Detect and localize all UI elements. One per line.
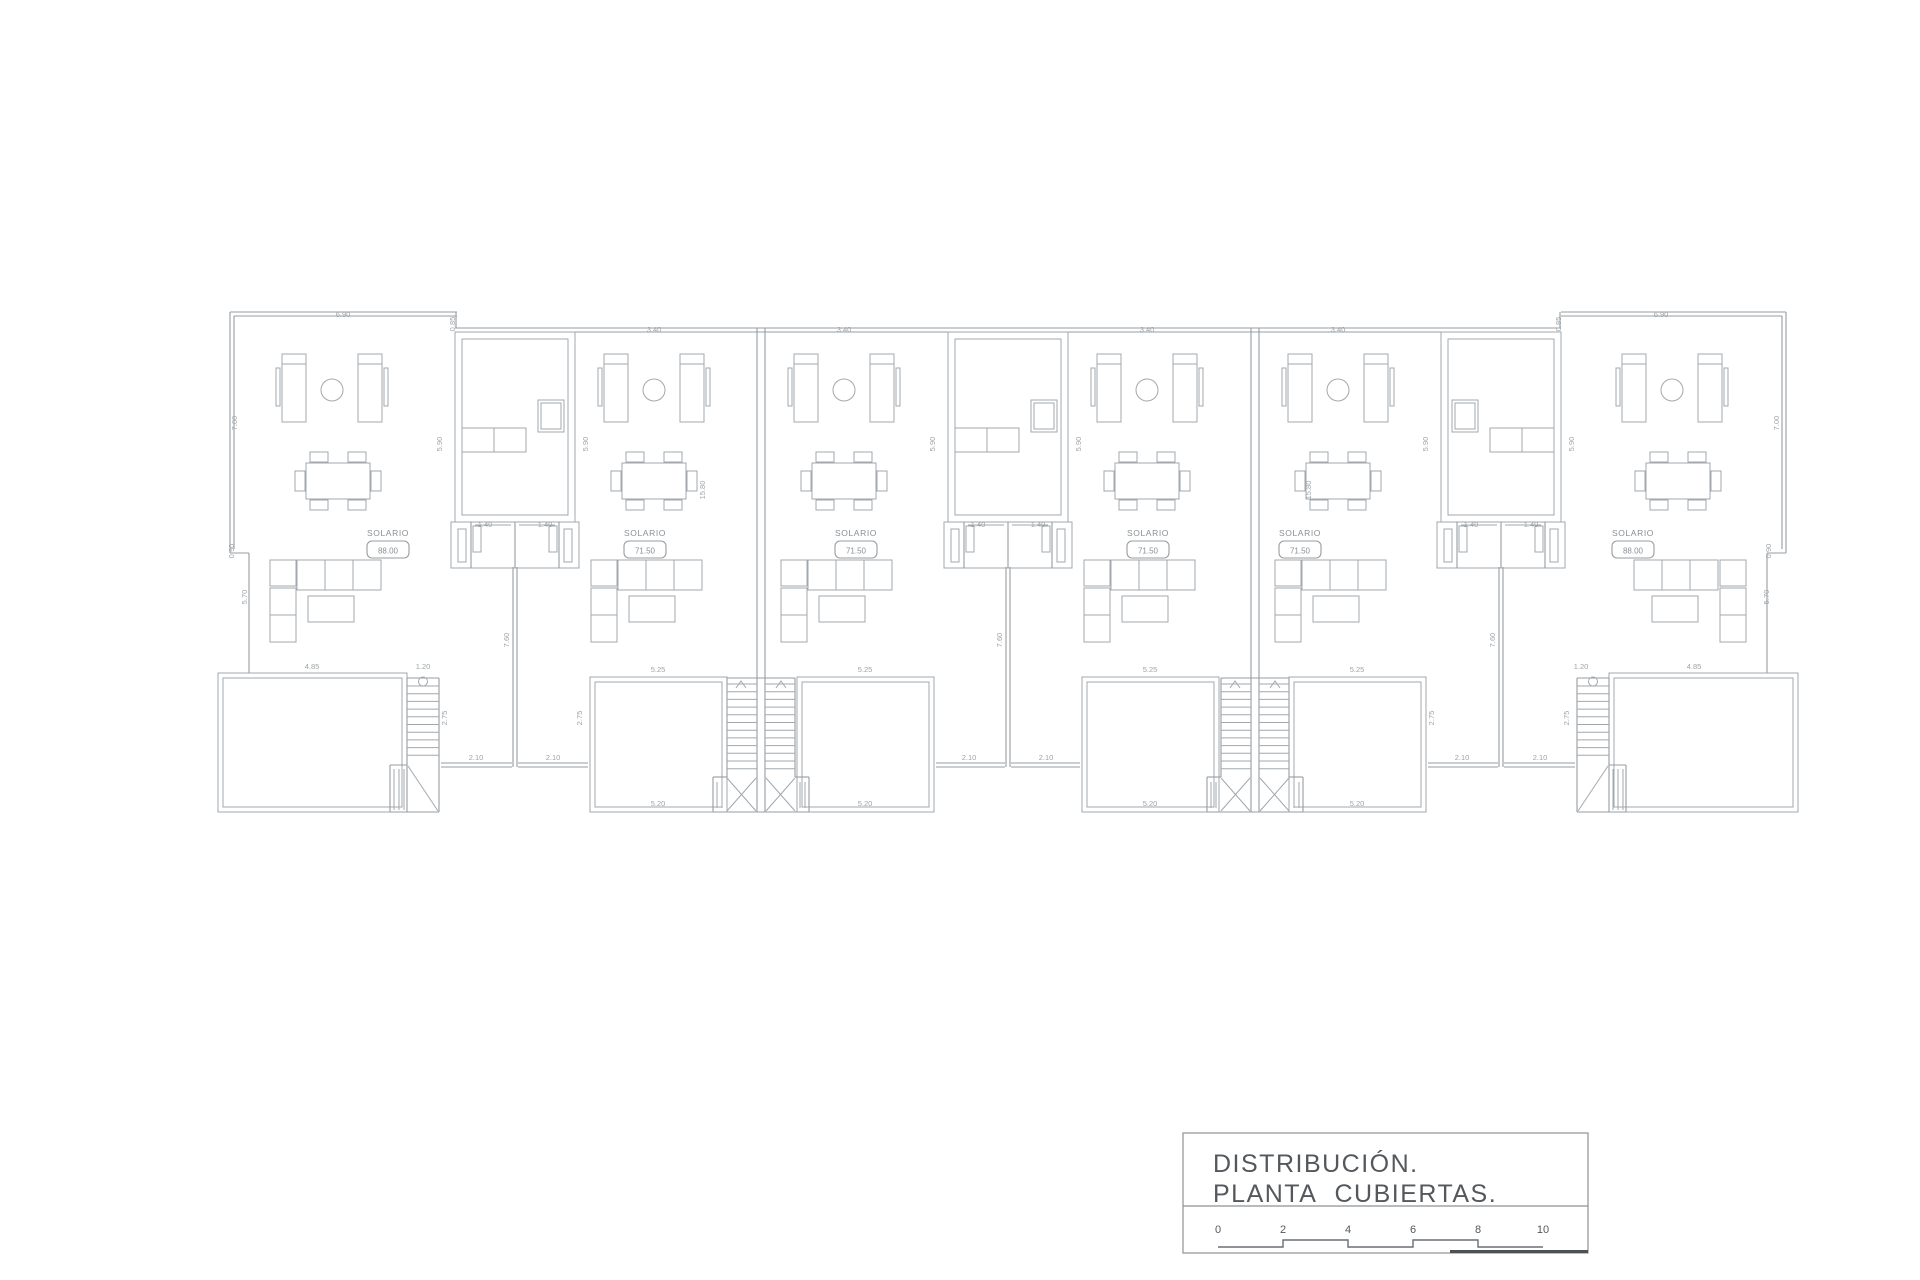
closet-door-leaf (549, 526, 557, 552)
dimension-label: 2.75 (575, 711, 584, 726)
solario-label: SOLARIO (367, 528, 409, 538)
dimension-label: 6.90 (1654, 310, 1669, 319)
sofa-corner (1084, 560, 1110, 586)
dining-chair (1688, 500, 1706, 510)
dining-chair (1650, 452, 1668, 462)
dimension-label: 5.90 (1074, 437, 1083, 452)
closet-slot (1444, 529, 1452, 562)
sofa-corner (781, 560, 807, 586)
roof-room (1082, 677, 1219, 812)
dimension-label: 5.20 (1143, 799, 1158, 808)
closet-slot (458, 529, 466, 562)
drawing-sheet: SOLARIO88.00SOLARIO71.50SOLARIO71.50SOLA… (0, 0, 1920, 1280)
dimension-label: 1.40 (1524, 520, 1539, 529)
dining-chair (877, 471, 887, 491)
dimension-label: 0.90 (1764, 544, 1773, 559)
dimension-label: 5.90 (1421, 437, 1430, 452)
dining-chair (1157, 452, 1175, 462)
closet-slot (1057, 529, 1065, 562)
sun-lounger-side (384, 368, 388, 406)
dimension-label: 7.00 (1772, 416, 1781, 431)
dining-table (1306, 463, 1370, 499)
dimension-label: 5.90 (928, 437, 937, 452)
scale-number: 0 (1215, 1224, 1221, 1236)
dimension-label: 6.90 (336, 310, 351, 319)
dining-chair (626, 452, 644, 462)
dining-chair (854, 452, 872, 462)
solario-area-value: 71.50 (1290, 547, 1311, 556)
roof-room-inner (1087, 682, 1214, 807)
sofa-three-seat (1111, 560, 1195, 590)
sofa-three-seat (808, 560, 892, 590)
dimension-label: 3.40 (1140, 325, 1155, 334)
solario-area-value: 88.00 (1623, 547, 1644, 556)
dimension-label: 5.25 (651, 665, 666, 674)
sun-lounger-side (1724, 368, 1728, 406)
solario-area-value: 71.50 (635, 547, 656, 556)
solario-label: SOLARIO (624, 528, 666, 538)
dining-chair (664, 500, 682, 510)
scale-number: 4 (1345, 1224, 1351, 1236)
dining-chair (295, 471, 305, 491)
dimension-label: 0.90 (227, 544, 236, 559)
dining-chair (664, 452, 682, 462)
sun-lounger-side (1199, 368, 1203, 406)
dining-chair (816, 500, 834, 510)
solario-label: SOLARIO (835, 528, 877, 538)
dimension-label: 2.10 (469, 753, 484, 762)
dining-chair (801, 471, 811, 491)
sun-lounger-side (896, 368, 900, 406)
dimension-label: 5.70 (1762, 590, 1771, 605)
dimension-label: 4.85 (1687, 662, 1702, 671)
scale-number: 6 (1410, 1224, 1416, 1236)
title-block: DISTRIBUCIÓN. PLANTA CUBIERTAS. 0246810 (1183, 1133, 1588, 1253)
dimension-label: 2.75 (440, 711, 449, 726)
dining-chair (348, 452, 366, 462)
dining-chair (1371, 471, 1381, 491)
roof-room-inner (1614, 678, 1793, 807)
dimension-label: 0.85 (448, 317, 457, 332)
stair-cut-line (408, 766, 438, 811)
scale-number: 10 (1537, 1224, 1549, 1236)
scale-number: 2 (1280, 1224, 1286, 1236)
closet-door-leaf (1535, 526, 1543, 552)
caseton-table (1031, 400, 1057, 432)
scale-bar: 0246810 (1215, 1224, 1549, 1247)
dimension-label: 1.40 (478, 520, 493, 529)
dining-chair (626, 500, 644, 510)
sun-lounger-side (598, 368, 602, 406)
dining-table (1115, 463, 1179, 499)
dimension-label: 15.80 (1304, 481, 1313, 500)
sun-lounger-side (788, 368, 792, 406)
sun-lounger-side (1616, 368, 1620, 406)
dimension-label: 15.80 (698, 481, 707, 500)
coffee-table (308, 596, 354, 622)
dining-table (622, 463, 686, 499)
round-table (1327, 379, 1349, 401)
dimension-label: 5.20 (651, 799, 666, 808)
roof-room-inner (1294, 682, 1421, 807)
roof-room (218, 673, 407, 812)
sun-lounger-side (1282, 368, 1286, 406)
closet-slot (1550, 529, 1558, 562)
floor-plan-canvas: SOLARIO88.00SOLARIO71.50SOLARIO71.50SOLA… (0, 0, 1920, 1280)
dimension-label: 4.85 (305, 662, 320, 671)
sofa-corner (270, 560, 296, 586)
dimension-label: 5.25 (858, 665, 873, 674)
dimension-label: 7.60 (995, 633, 1004, 648)
sofa-corner (1720, 560, 1746, 586)
sun-lounger-side (1390, 368, 1394, 406)
dimension-label: 1.20 (416, 662, 431, 671)
dimension-label: 5.90 (435, 437, 444, 452)
solario-label: SOLARIO (1612, 528, 1654, 538)
solario-label: SOLARIO (1279, 528, 1321, 538)
dimension-label: 2.10 (1455, 753, 1470, 762)
dimension-label: 1.20 (1574, 662, 1589, 671)
sofa-three-seat (1302, 560, 1386, 590)
dimension-label: 3.40 (647, 325, 662, 334)
closet-door-leaf (1042, 526, 1050, 552)
sofa-corner (591, 560, 617, 586)
dimension-label: 3.40 (1331, 325, 1346, 334)
dining-chair (687, 471, 697, 491)
sun-lounger-side (276, 368, 280, 406)
plan-stairs (390, 677, 1626, 812)
dimension-label: 5.20 (858, 799, 873, 808)
roof-room-inner (223, 678, 402, 807)
closet-slot (564, 529, 572, 562)
solario-area-value: 71.50 (1138, 547, 1159, 556)
dining-chair (611, 471, 621, 491)
dimension-label: 3.40 (837, 325, 852, 334)
dimension-label: 5.25 (1143, 665, 1158, 674)
round-table (1661, 379, 1683, 401)
title-line1: DISTRIBUCIÓN. (1213, 1149, 1419, 1178)
dining-chair (1635, 471, 1645, 491)
dimension-label: 1.40 (1031, 520, 1046, 529)
sun-lounger-side (706, 368, 710, 406)
solario-label: SOLARIO (1127, 528, 1169, 538)
caseton-table (1452, 400, 1478, 432)
dining-chair (1650, 500, 1668, 510)
dimension-label: 5.90 (581, 437, 590, 452)
solario-area-value: 88.00 (378, 547, 399, 556)
dimension-label: 7.60 (1488, 633, 1497, 648)
dining-chair (1119, 452, 1137, 462)
dining-chair (1711, 471, 1721, 491)
dimension-label: 7.60 (502, 633, 511, 648)
closet-slot (951, 529, 959, 562)
coffee-table (1122, 596, 1168, 622)
plan-furniture (270, 354, 1746, 642)
sofa-corner (1275, 560, 1301, 586)
dining-table (812, 463, 876, 499)
dining-chair (310, 452, 328, 462)
dining-table (1646, 463, 1710, 499)
dining-chair (1104, 471, 1114, 491)
dining-chair (371, 471, 381, 491)
title-line2: PLANTA CUBIERTAS. (1213, 1180, 1497, 1208)
coffee-table (1313, 596, 1359, 622)
roof-room-inner (802, 682, 929, 807)
coffee-table (819, 596, 865, 622)
round-table (833, 379, 855, 401)
coffee-table (1652, 596, 1698, 622)
dimension-label: 7.00 (230, 416, 239, 431)
dining-table (306, 463, 370, 499)
closet-door-leaf (966, 526, 974, 552)
sofa-three-seat (297, 560, 381, 590)
dining-chair (1348, 500, 1366, 510)
scale-bar-line (1218, 1240, 1543, 1247)
dining-chair (348, 500, 366, 510)
dimension-label: 5.25 (1350, 665, 1365, 674)
sun-lounger-side (1091, 368, 1095, 406)
dimension-label: 5.20 (1350, 799, 1365, 808)
dimension-label: 2.10 (1533, 753, 1548, 762)
plan-walls (218, 312, 1798, 812)
caseton-table (538, 400, 564, 432)
dimension-label: 5.90 (1567, 437, 1576, 452)
dining-chair (1688, 452, 1706, 462)
round-table (321, 379, 343, 401)
stair-cut-line (1578, 766, 1608, 811)
dining-chair (1157, 500, 1175, 510)
dimension-label: 1.40 (538, 520, 553, 529)
dining-chair (1180, 471, 1190, 491)
scale-number: 8 (1475, 1224, 1481, 1236)
dimension-label: 5.70 (240, 590, 249, 605)
dimension-label: 0.85 (1554, 317, 1563, 332)
dining-chair (310, 500, 328, 510)
dimension-label: 1.40 (971, 520, 986, 529)
dining-chair (854, 500, 872, 510)
roof-room-inner (595, 682, 722, 807)
coffee-table (629, 596, 675, 622)
solario-area-value: 71.50 (846, 547, 867, 556)
dining-chair (1119, 500, 1137, 510)
dimension-label: 1.40 (1464, 520, 1479, 529)
roof-room (590, 677, 727, 812)
dining-chair (1310, 500, 1328, 510)
dining-chair (816, 452, 834, 462)
roof-room (1609, 673, 1798, 812)
round-table (1136, 379, 1158, 401)
round-table (643, 379, 665, 401)
dimension-label: 2.10 (546, 753, 561, 762)
sofa-three-seat (1634, 560, 1718, 590)
dining-chair (1348, 452, 1366, 462)
roof-room (1289, 677, 1426, 812)
dining-chair (1310, 452, 1328, 462)
sofa-three-seat (618, 560, 702, 590)
closet-door-leaf (473, 526, 481, 552)
dimension-label: 2.75 (1427, 711, 1436, 726)
dimension-label: 2.75 (1562, 711, 1571, 726)
roof-room (797, 677, 934, 812)
closet-door-leaf (1459, 526, 1467, 552)
dimension-label: 2.10 (1039, 753, 1054, 762)
dimension-label: 2.10 (962, 753, 977, 762)
